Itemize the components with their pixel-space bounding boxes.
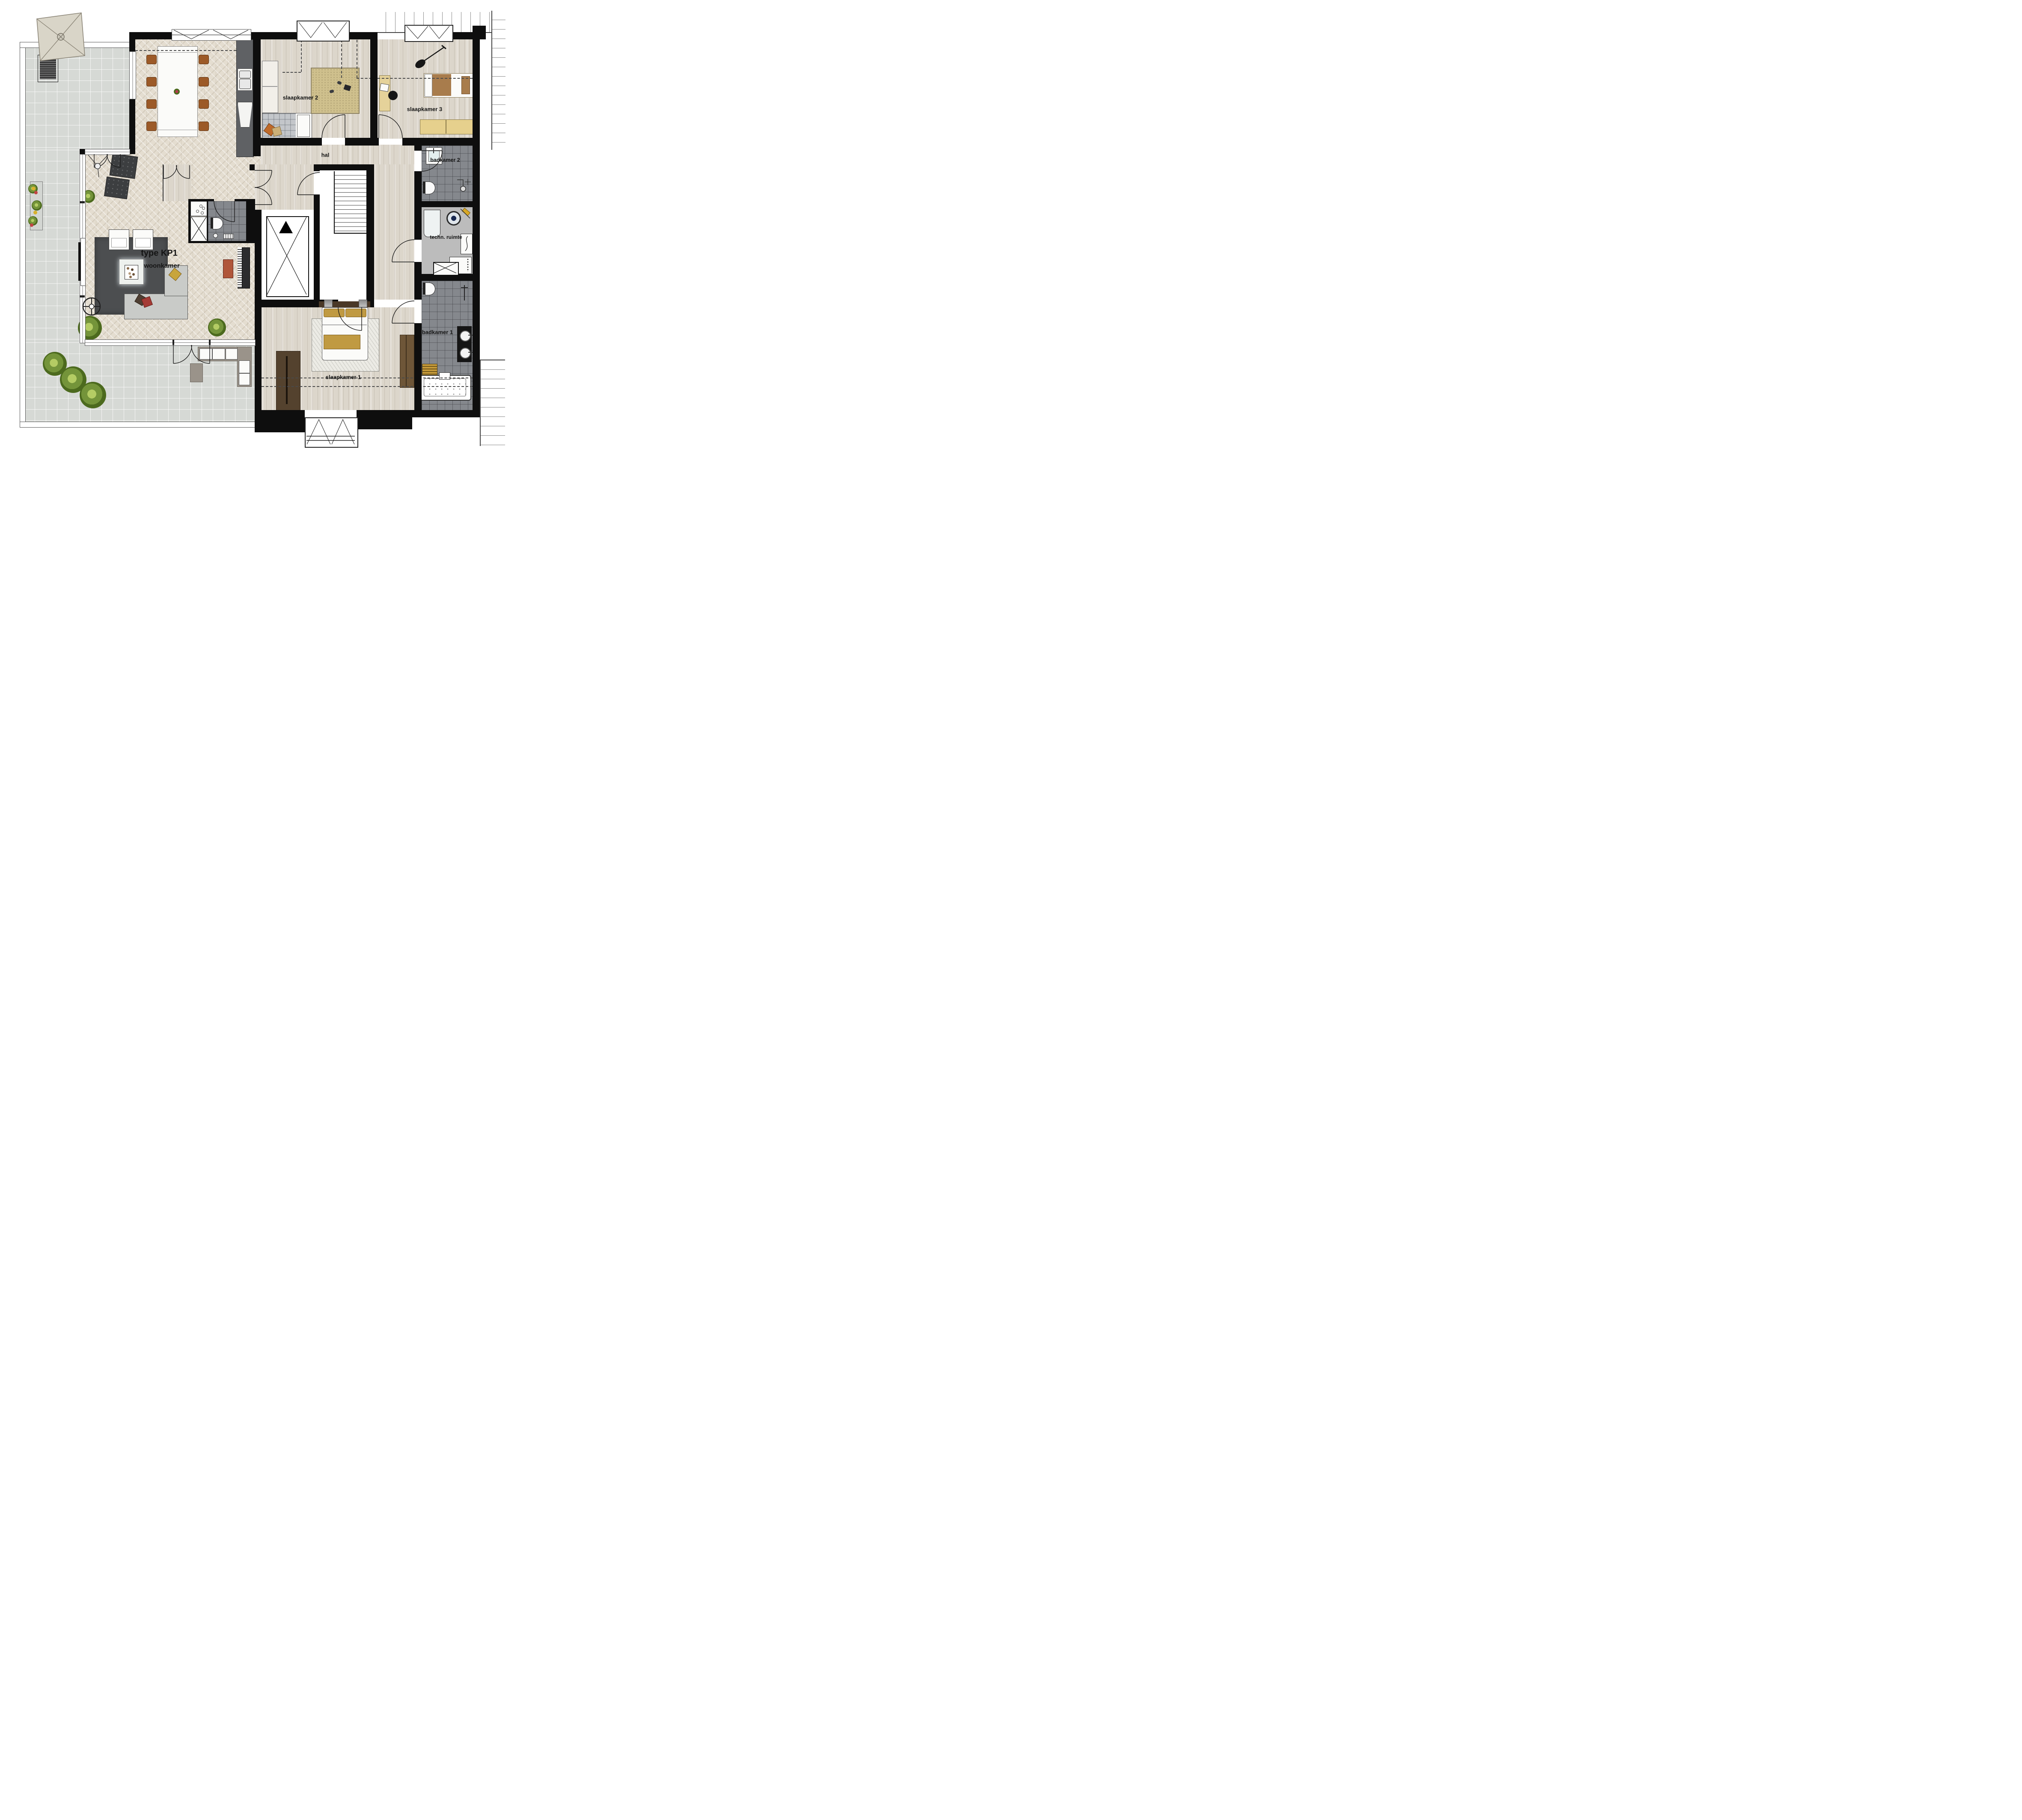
roofline-dash xyxy=(301,40,302,72)
kitchen-sink-basin xyxy=(239,79,251,89)
window-wall-step xyxy=(85,149,130,155)
wall xyxy=(414,323,422,410)
wall xyxy=(255,210,262,342)
wall xyxy=(188,199,214,201)
planter-flower-red xyxy=(34,191,38,194)
bedside-lamp xyxy=(359,300,367,307)
bathroom1-basin xyxy=(460,348,471,359)
roofline-dash xyxy=(341,40,342,78)
dining-chair xyxy=(146,122,157,131)
outdoor-table xyxy=(190,363,203,382)
wall xyxy=(414,262,422,300)
armchair-seatline xyxy=(111,238,127,247)
window-mullion xyxy=(209,339,211,345)
living-plant-3 xyxy=(208,318,226,336)
terrace-railing-left xyxy=(20,42,26,428)
boiler xyxy=(424,210,440,237)
wall xyxy=(129,32,172,39)
piano-keys xyxy=(238,247,242,288)
dining-chair xyxy=(146,55,157,64)
bedroom2-pillow xyxy=(297,115,310,137)
dining-chair xyxy=(199,122,209,131)
floor-lobby xyxy=(255,164,314,210)
bedroom1-wardrobe xyxy=(400,335,414,388)
bedroom3-cabinet-yellow xyxy=(420,119,473,134)
label-type: type KP1 xyxy=(141,249,178,259)
dormer-bedroom3 xyxy=(404,25,453,42)
bedroom3-blanket xyxy=(431,74,451,96)
bedroom2-wardrobe xyxy=(262,61,278,113)
roofline-dash xyxy=(262,386,473,387)
bedroom1-wardrobe-line xyxy=(406,335,407,387)
window-dining-north xyxy=(172,29,251,41)
bathtub-faucet xyxy=(439,372,450,380)
bbq-grill xyxy=(38,55,58,82)
bedroom3-laptop xyxy=(380,83,390,92)
bathtub-inner xyxy=(424,378,466,396)
outdoor-sofa-cushion xyxy=(212,348,225,360)
wall xyxy=(253,32,261,156)
planter-greens-2 xyxy=(32,200,42,211)
technical-box-dotcol xyxy=(467,258,469,272)
window-mullion xyxy=(172,339,174,345)
window-west-dining xyxy=(129,51,136,99)
dining-chair xyxy=(146,77,157,86)
outdoor-sofa-cushion xyxy=(226,348,238,360)
dining-table-endline xyxy=(158,52,197,53)
wall xyxy=(402,138,473,146)
bedroom3-cabinet-line xyxy=(446,119,446,134)
planter-flower-red2 xyxy=(30,223,33,227)
bedroom3-pillow xyxy=(425,74,432,97)
window-mullion xyxy=(80,201,85,203)
label-hal: hal xyxy=(321,152,330,158)
roof-strip-bottom-right xyxy=(480,360,505,446)
wall xyxy=(357,410,480,417)
label-badkamer2: badkamer 2 xyxy=(430,157,460,163)
dormer-sill-line xyxy=(306,436,355,437)
stair-treads xyxy=(334,171,366,232)
technical-box-s xyxy=(461,234,473,254)
wall xyxy=(370,32,378,138)
planter-flower-yellow2 xyxy=(33,211,37,214)
roofline-dash xyxy=(282,72,301,73)
wall xyxy=(314,195,320,300)
floor-corridor-right xyxy=(374,164,414,300)
wall xyxy=(235,199,246,201)
bbq-herb-plant xyxy=(42,43,49,50)
dining-chair xyxy=(199,99,209,109)
bedroom1-cabinet-dark xyxy=(276,351,300,411)
bedroom1-cabinet-glassline xyxy=(286,356,288,404)
armchair-seatline xyxy=(135,238,151,247)
bedroom3-cushion xyxy=(461,76,470,94)
wall xyxy=(188,199,190,243)
wc-basin-dots xyxy=(199,205,202,208)
window-mullion xyxy=(80,295,85,297)
wall xyxy=(253,138,322,146)
floor-hall xyxy=(261,145,414,164)
bathroom1-basin xyxy=(460,330,471,342)
sofa-l-horizontal xyxy=(124,294,188,319)
tv-screen xyxy=(78,242,81,281)
technical-shaft xyxy=(433,262,459,276)
floor-corridor-left xyxy=(163,164,191,201)
wall xyxy=(255,417,305,432)
bedside-lamp xyxy=(324,300,333,307)
bedroom1-throw-gold xyxy=(324,335,360,349)
wall xyxy=(366,164,374,300)
dining-table-endline xyxy=(158,130,197,130)
bedroom3-desk-chair xyxy=(388,91,398,100)
planter-flower-yellow xyxy=(32,187,36,190)
label-woonkamer: woonkamer xyxy=(144,262,179,270)
label-techniek: techn. ruimte xyxy=(430,234,462,240)
roofline-dash xyxy=(262,378,473,378)
wall xyxy=(414,138,422,151)
elevator-car xyxy=(266,216,309,297)
vent-fan xyxy=(446,211,461,226)
wall xyxy=(473,32,480,410)
table-flowers xyxy=(174,89,180,95)
terrace-railing-top xyxy=(20,42,130,48)
label-slaapkamer1: slaapkamer 1 xyxy=(326,374,361,381)
wall xyxy=(452,32,473,39)
bath-mat-gold xyxy=(422,364,437,376)
outdoor-sofa-cushion xyxy=(239,360,250,373)
wall xyxy=(129,149,135,154)
wall xyxy=(345,138,379,146)
wall xyxy=(255,342,262,417)
roofline-dash xyxy=(357,40,357,78)
lounge-chair-tufted xyxy=(110,153,138,179)
bedroom2-rug xyxy=(311,68,360,114)
label-slaapkamer3: slaapkamer 3 xyxy=(407,106,442,113)
window-wall-south xyxy=(85,339,256,346)
bedroom2-wardrobe-line xyxy=(262,86,277,87)
bedroom1-pillow-gold xyxy=(345,309,366,317)
wall xyxy=(255,410,305,417)
outdoor-sofa-cushion xyxy=(199,348,212,360)
wall xyxy=(414,201,473,207)
label-badkamer1: badkamer 1 xyxy=(422,329,453,336)
terrace-west xyxy=(24,150,80,342)
kitchen-counter xyxy=(236,39,254,157)
dormer-bedroom1 xyxy=(305,417,358,448)
tv-cabinet xyxy=(80,238,86,286)
dining-chair xyxy=(199,77,209,86)
outdoor-sofa-cushion xyxy=(239,373,250,385)
wall xyxy=(314,164,320,171)
piano-bench xyxy=(223,259,233,278)
wall xyxy=(357,417,412,429)
dormer-sill-line xyxy=(306,440,355,441)
bedroom1-duvet-seam xyxy=(322,324,367,325)
bedroom1-pillow-gold xyxy=(324,309,345,317)
dining-chair xyxy=(199,55,209,64)
floorplan-type-kp1: type KP1 woonkamer hal slaapkamer 2 slaa… xyxy=(0,0,505,455)
wall xyxy=(80,149,85,154)
terrace-railing-bottom xyxy=(20,422,258,428)
terrace-plant-3 xyxy=(80,382,106,408)
wall xyxy=(250,164,255,170)
wall xyxy=(246,199,255,243)
wc-radiator xyxy=(223,234,234,239)
lounge-ottoman-tufted xyxy=(104,176,130,199)
wall xyxy=(207,201,208,241)
tray-cups xyxy=(127,267,129,270)
wc-shaft xyxy=(190,217,208,241)
roofline-dash xyxy=(135,50,236,51)
wall xyxy=(320,164,374,170)
kitchen-sink-basin xyxy=(239,71,251,78)
wc-washbasin-cabinet xyxy=(190,201,208,216)
wall xyxy=(188,241,246,243)
roof-strip-right xyxy=(491,11,505,150)
dining-chair xyxy=(146,99,157,109)
wc-drain xyxy=(213,233,218,238)
label-slaapkamer2: slaapkamer 2 xyxy=(283,95,318,101)
dormer-bedroom2 xyxy=(297,21,350,42)
